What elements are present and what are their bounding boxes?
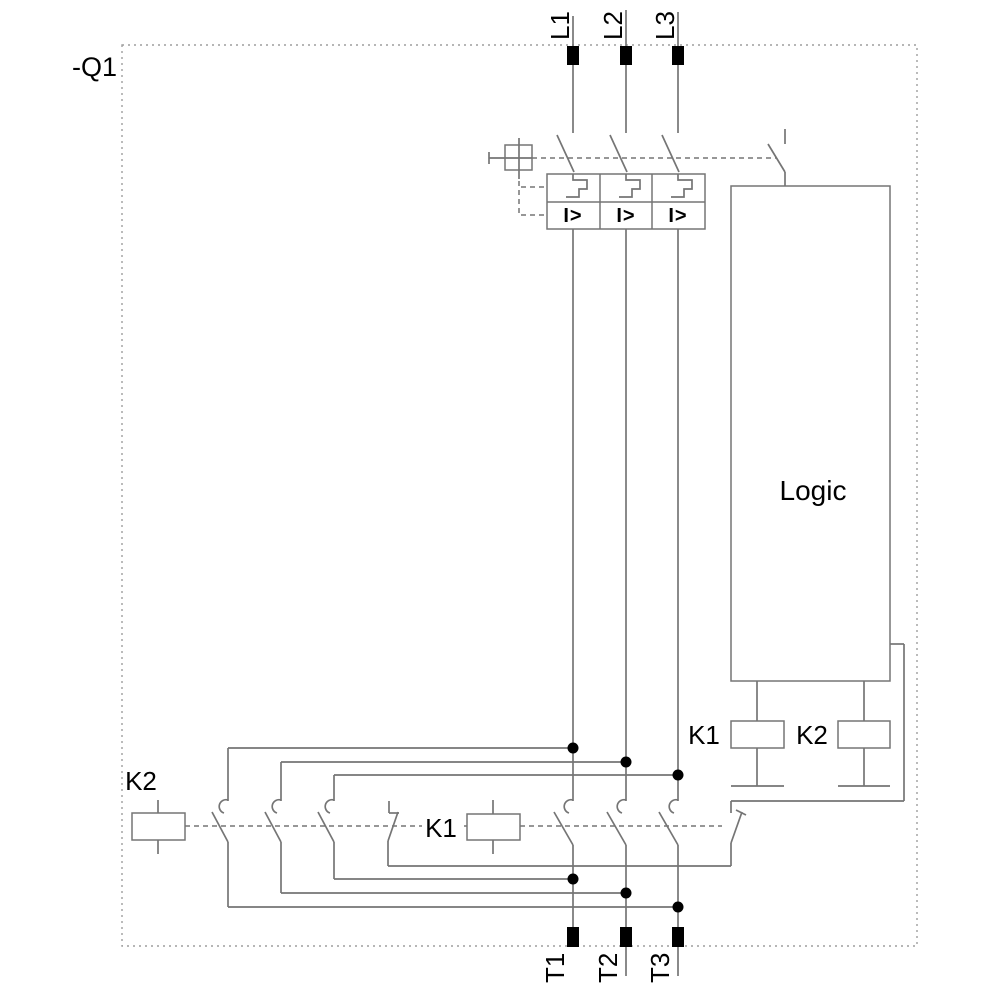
k1-contactor-box [467,814,520,840]
output-terminal-label-t2: T2 [593,953,623,983]
k2-contact-blade-1 [212,812,228,842]
overcurrent-label-3: I> [668,205,687,227]
input-terminal-label-l1: L1 [545,11,575,40]
terminal-pad-t1 [567,927,579,947]
contact-fixed-arc-l1 [564,800,573,813]
k2-coil-label: K2 [796,720,828,750]
aux-contact-right-blade [731,812,742,843]
junction-dot [568,743,579,754]
k1-contactor-label: K1 [425,813,457,843]
terminal-pad-l1 [567,46,579,65]
trip-latch-l2 [619,174,640,197]
junction-dot [673,770,684,781]
junction-dot [621,757,632,768]
k1-main-contact-blade-l3 [659,812,678,845]
output-terminal-label-t1: T1 [540,953,570,983]
k2-coil-box [838,721,890,748]
overcurrent-label-1: I> [563,205,582,227]
junction-dot [673,902,684,913]
logic-box [731,186,890,681]
input-terminal-label-l2: L2 [598,11,628,40]
input-terminal-label-l3: L3 [650,11,680,40]
contact-fixed-arc-b3 [325,800,334,813]
component-boxes [132,145,890,840]
trip-latch-l3 [671,174,692,197]
contact-fixed-arc-b1 [219,800,228,813]
junction-dot [568,874,579,885]
junction-dot [621,888,632,899]
breaker-contact-blade-l3 [662,135,679,172]
terminal-pad-l3 [672,46,684,65]
trip-latch-l1 [566,174,587,197]
k2-contact-blade-3 [318,812,334,842]
output-terminal-label-t3: T3 [645,953,675,983]
contact-fixed-arc-b2 [272,800,281,813]
contact-fixed-arc-l2 [617,800,626,813]
circuit-diagram: -Q1 L1 L2 L3 T1 T2 T3 I> I> I> Logic K1 … [0,0,1000,1000]
k2-contactor-label: K2 [125,766,157,796]
k1-coil-label: K1 [688,720,720,750]
schematic-page: -Q1 L1 L2 L3 T1 T2 T3 I> I> I> Logic K1 … [0,0,1000,1000]
k1-main-contact-blade-l2 [607,812,626,845]
contact-fixed-arc-l3 [669,800,678,813]
k2-contact-blade-2 [265,812,281,842]
terminal-pad-t3 [672,927,684,947]
breaker-contact-blade-l1 [557,135,574,172]
overcurrent-label-2: I> [616,205,635,227]
terminal-pad-l2 [620,46,632,65]
k1-main-contact-blade-l1 [554,812,573,845]
terminal-pad-t2 [620,927,632,947]
breaker-contact-blade-l2 [610,135,627,172]
logic-label: Logic [780,475,847,506]
k1-coil-box [731,721,784,748]
k2-contactor-box [132,813,185,840]
device-tag: -Q1 [72,52,117,82]
